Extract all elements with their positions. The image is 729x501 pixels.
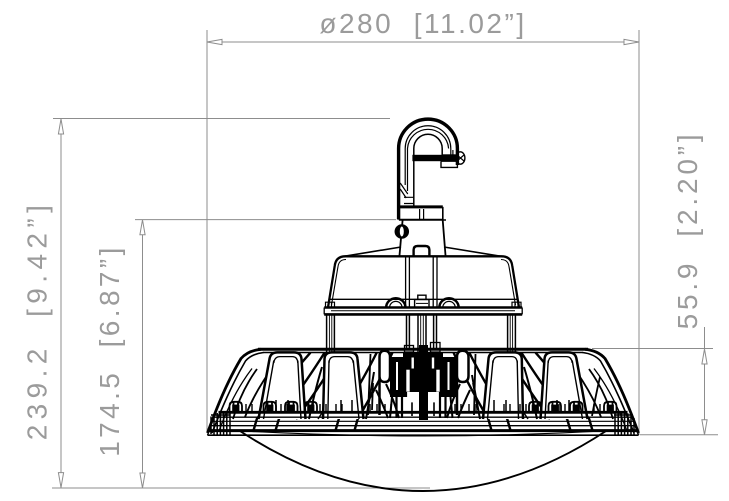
svg-text:239.2 [9.42”]: 239.2 [9.42”] [22, 200, 53, 441]
svg-text:55.9 [2.20”]: 55.9 [2.20”] [672, 131, 703, 330]
svg-text:174.5 [6.87”]: 174.5 [6.87”] [94, 244, 125, 457]
svg-text:ø280 [11.02”]: ø280 [11.02”] [319, 8, 526, 39]
